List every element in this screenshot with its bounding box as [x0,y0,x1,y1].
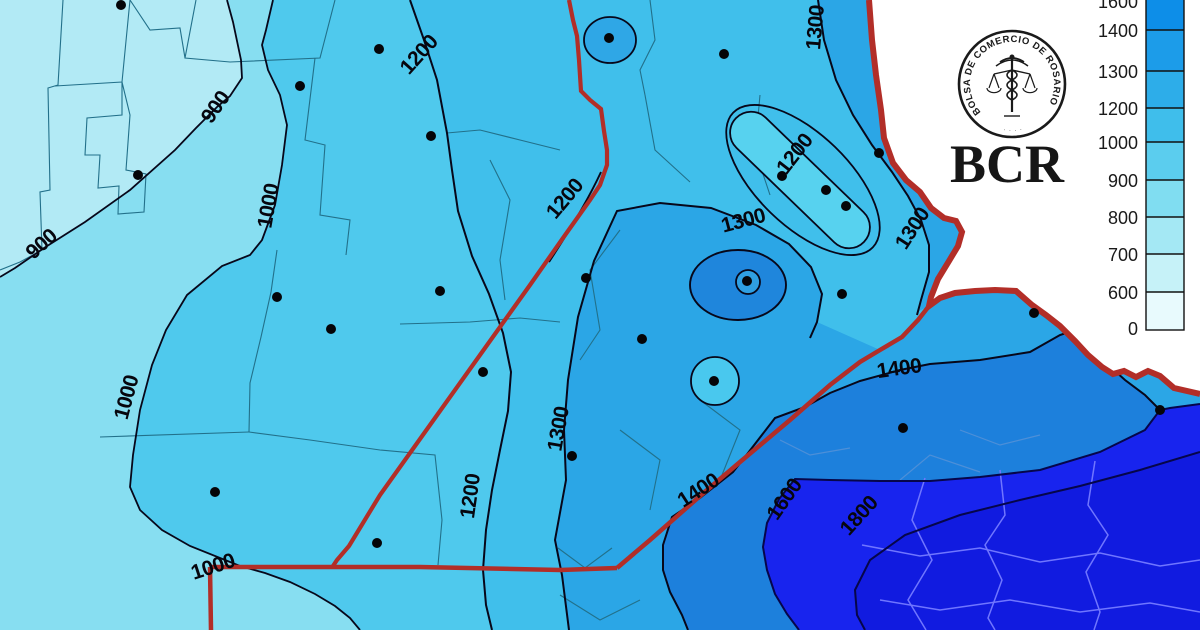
svg-text:1000: 1000 [1098,133,1138,153]
svg-text:900: 900 [1108,171,1138,191]
svg-text:800: 800 [1108,208,1138,228]
svg-text:1300: 1300 [802,4,829,51]
svg-text:0: 0 [1128,319,1138,339]
svg-text:1300: 1300 [1098,62,1138,82]
svg-text:600: 600 [1108,283,1138,303]
svg-text:1400: 1400 [1098,21,1138,41]
svg-text:1200: 1200 [1098,99,1138,119]
svg-text:1600: 1600 [1098,0,1138,12]
svg-text:BCR: BCR [950,134,1065,194]
svg-text:700: 700 [1108,245,1138,265]
